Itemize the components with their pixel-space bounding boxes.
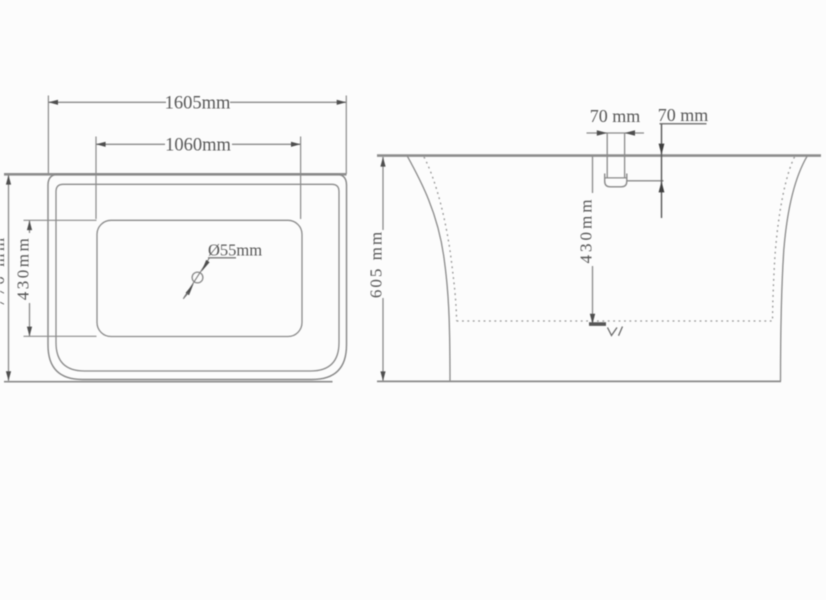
svg-text:70 mm: 70 mm (590, 106, 641, 126)
svg-text:1060mm: 1060mm (165, 136, 231, 156)
svg-text:605 mm: 605 mm (367, 230, 386, 298)
svg-text:430mm: 430mm (577, 197, 596, 264)
svg-text:770 mm: 770 mm (0, 235, 8, 306)
svg-text:1605mm: 1605mm (165, 94, 231, 114)
svg-text:70 mm: 70 mm (658, 105, 709, 125)
svg-text:Ø55mm: Ø55mm (208, 241, 262, 260)
svg-text:430mm: 430mm (14, 236, 33, 300)
